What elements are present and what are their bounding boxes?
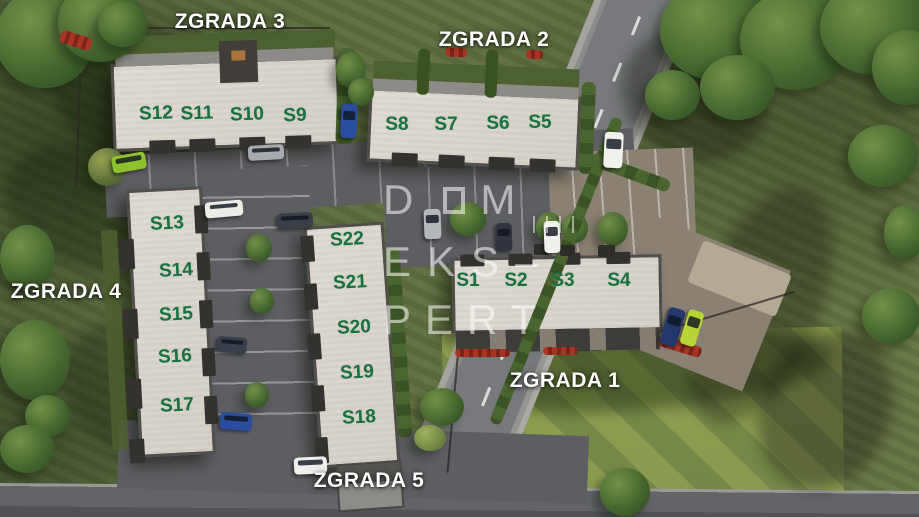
tree: [246, 234, 272, 262]
car-windshield: [687, 316, 701, 329]
watermark-row-1: DM: [383, 176, 515, 224]
car-windshield: [224, 416, 249, 422]
watermark-row-3: PERT: [383, 296, 550, 344]
watermark: DM EKS– PERT: [383, 176, 643, 346]
roof-terrace: [219, 40, 258, 83]
flower-bed: [543, 347, 578, 355]
unit-label: S7: [434, 114, 457, 136]
tree: [420, 388, 464, 426]
unit-label: S10: [230, 103, 265, 126]
watermark-row-2: EKS–: [383, 238, 554, 286]
car-windshield: [281, 215, 309, 220]
flower-bed: [455, 349, 510, 357]
bush: [414, 425, 446, 451]
tree: [884, 205, 919, 260]
tree: [0, 425, 55, 473]
entrance: [391, 152, 418, 166]
patio: [119, 239, 136, 270]
unit-label: S13: [150, 212, 185, 236]
cypress-bush: [416, 49, 430, 95]
car-white: [204, 199, 243, 218]
entrance: [196, 252, 210, 281]
car-windshield: [343, 110, 356, 119]
unit-label: S19: [340, 361, 375, 385]
entrance: [488, 157, 515, 171]
tree: [348, 78, 374, 106]
building-label: ZGRADA 3: [175, 10, 286, 34]
watermark-letter: M: [480, 176, 515, 223]
unit-label: S9: [283, 105, 307, 128]
car-blue: [340, 104, 358, 139]
unit-label: S18: [342, 406, 377, 430]
tree: [245, 382, 269, 408]
patio: [126, 379, 143, 410]
building-label: ZGRADA 5: [314, 469, 425, 493]
entrance: [204, 396, 218, 425]
unit-label: S15: [159, 303, 194, 327]
entrance: [199, 300, 213, 329]
unit-label: S17: [160, 394, 195, 418]
entrance: [311, 385, 326, 412]
unit-label: S11: [180, 102, 214, 125]
unit-label: S22: [330, 228, 365, 252]
cypress-bush: [484, 49, 498, 97]
car-windshield: [298, 460, 323, 466]
unit-label: S12: [139, 102, 174, 125]
tree: [250, 288, 274, 314]
tree: [862, 288, 919, 344]
tree: [600, 468, 650, 516]
car-dark: [216, 336, 247, 355]
building-label: ZGRADA 4: [11, 280, 122, 304]
site-plan: S12 S11 S10 S9 S8 S7 S6 S5 S1 S2 S3 S4 S…: [0, 0, 919, 517]
car-windshield: [209, 203, 238, 210]
entrance: [304, 283, 319, 310]
tree: [0, 320, 70, 400]
entrance: [300, 235, 315, 262]
entrance: [149, 140, 175, 154]
car-windshield: [252, 147, 280, 152]
car-white: [603, 132, 624, 169]
watermark-letter: D: [383, 176, 413, 223]
car-windshield: [221, 339, 244, 345]
unit-label: S6: [486, 113, 509, 135]
unit-label: S20: [337, 316, 372, 340]
tree: [848, 125, 918, 187]
car-windshield: [606, 139, 621, 149]
terrace-furniture: [231, 50, 245, 60]
unit-label: S21: [333, 271, 368, 295]
unit-label: S8: [385, 114, 408, 136]
unit-label: S5: [528, 112, 551, 134]
tree: [645, 70, 700, 120]
entrance: [201, 348, 215, 377]
entrance: [307, 333, 322, 360]
watermark-square-icon: [443, 187, 465, 214]
entrance: [189, 138, 215, 152]
entrance: [438, 154, 465, 168]
entrance: [529, 158, 556, 172]
building-label: ZGRADA 1: [510, 369, 621, 393]
patio: [122, 309, 139, 340]
unit-label: S16: [158, 345, 193, 369]
car-blue: [219, 412, 252, 431]
watermark-bars: [533, 216, 574, 233]
patio: [129, 439, 145, 464]
tree: [700, 55, 775, 120]
car-dark: [277, 212, 314, 229]
car-windshield: [115, 155, 141, 164]
car-silver: [248, 144, 285, 161]
unit-label: S14: [159, 259, 194, 283]
entrance: [285, 135, 311, 149]
building-label: ZGRADA 2: [439, 28, 550, 52]
car-windshield: [667, 314, 682, 327]
tree: [98, 2, 148, 47]
